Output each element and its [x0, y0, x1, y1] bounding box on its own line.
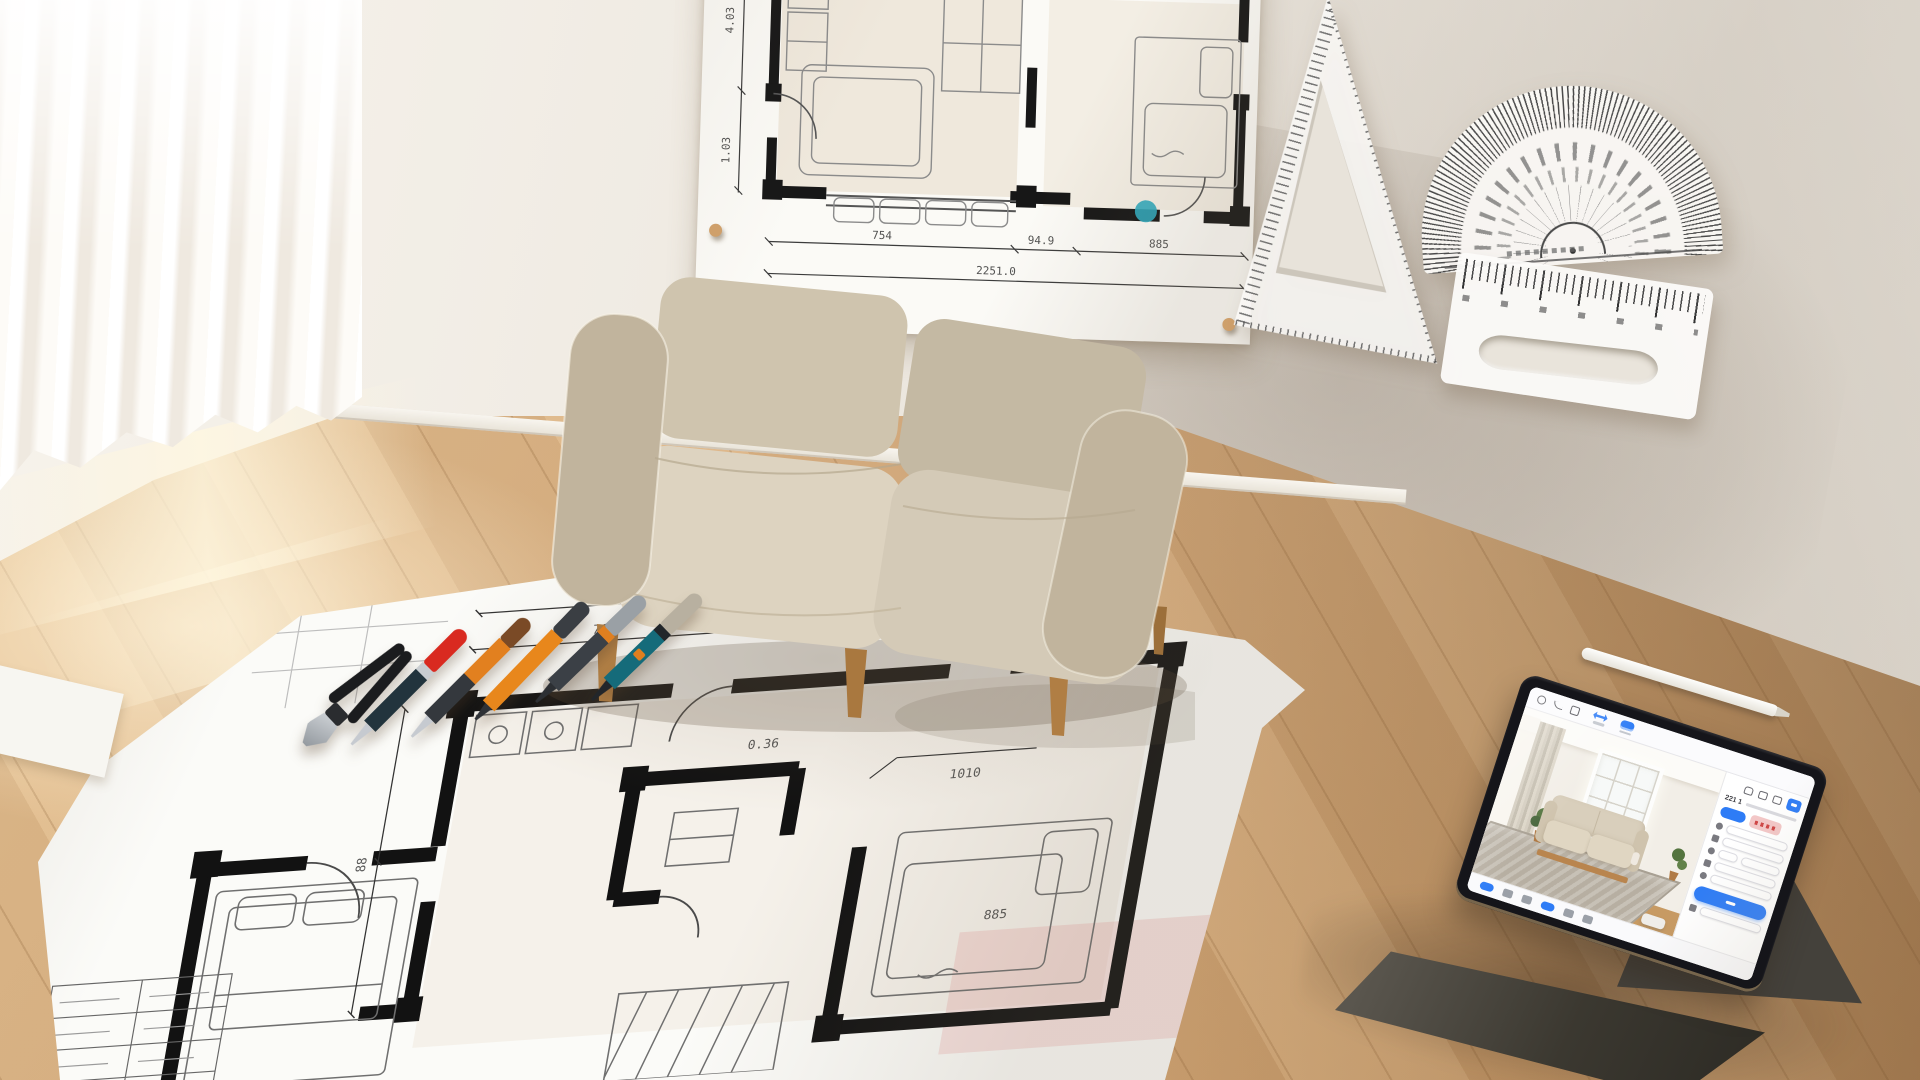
property-icon — [1688, 903, 1697, 912]
move-icon[interactable] — [1479, 881, 1495, 893]
share-icon[interactable] — [1785, 798, 1802, 814]
furniture-icon[interactable] — [1521, 894, 1533, 905]
camera-icon[interactable] — [1540, 901, 1556, 913]
panel-header: 221 1 — [1724, 794, 1743, 806]
ruler-handle-slot — [1477, 333, 1660, 387]
measure-tool[interactable] — [1591, 711, 1609, 728]
property-icon — [1715, 822, 1724, 831]
settings-icon[interactable] — [1582, 914, 1594, 925]
property-icon — [1699, 871, 1708, 880]
grid-icon[interactable] — [1502, 888, 1514, 899]
undo-icon[interactable] — [1552, 701, 1564, 711]
property-icon — [1703, 859, 1712, 868]
scene: 754 94.9 885 2251.0 4.03 1.03 — [0, 0, 1920, 1080]
cube-icon[interactable] — [1757, 790, 1768, 800]
crop-icon[interactable] — [1569, 705, 1580, 716]
icon-caption — [1592, 721, 1604, 727]
layers-icon[interactable] — [1563, 908, 1575, 919]
sofa-back-cushion-left — [648, 274, 910, 459]
gallery-icon[interactable] — [1772, 795, 1783, 805]
property-field[interactable] — [1717, 849, 1739, 864]
property-icon — [1711, 834, 1720, 843]
primary-chip[interactable] — [1719, 806, 1747, 824]
back-icon[interactable] — [1536, 694, 1547, 705]
camera-icon[interactable] — [1743, 786, 1754, 796]
property-icon — [1707, 846, 1716, 855]
save-tool[interactable] — [1618, 719, 1635, 736]
